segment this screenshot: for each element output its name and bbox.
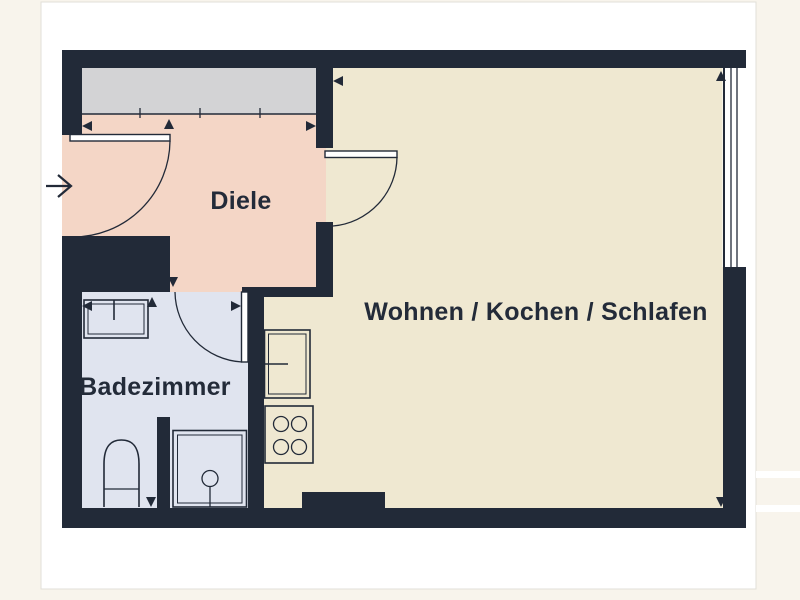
room-label-badezimmer: Badezimmer [79, 373, 231, 401]
wardrobe [82, 68, 316, 114]
wall-bath-northwest-mass [62, 236, 170, 292]
wall-bath-east [248, 287, 264, 508]
window [723, 68, 747, 267]
hallway-door-leaf [325, 151, 397, 158]
bathroom-door-leaf [242, 292, 249, 362]
room-label-wohnen: Wohnen / Kochen / Schlafen [364, 298, 707, 326]
hallway-opening-east [326, 148, 333, 222]
wall-diele-east-lower [316, 222, 333, 287]
floorplan-page: Diele Badezimmer Wohnen / Kochen / Schla… [0, 0, 800, 600]
page-artifact-line-2 [756, 505, 800, 512]
wall-south-pillar [302, 492, 385, 508]
wall-diele-east-upper [316, 68, 333, 148]
page-artifact-line-1 [756, 471, 800, 478]
entrance-door-leaf [70, 135, 170, 142]
floorplan-svg: Diele Badezimmer Wohnen / Kochen / Schla… [0, 0, 800, 600]
hallway-opening-west [316, 148, 326, 222]
window-glass [723, 68, 747, 267]
room-label-diele: Diele [210, 187, 271, 215]
wall-shower-stub [157, 417, 170, 508]
